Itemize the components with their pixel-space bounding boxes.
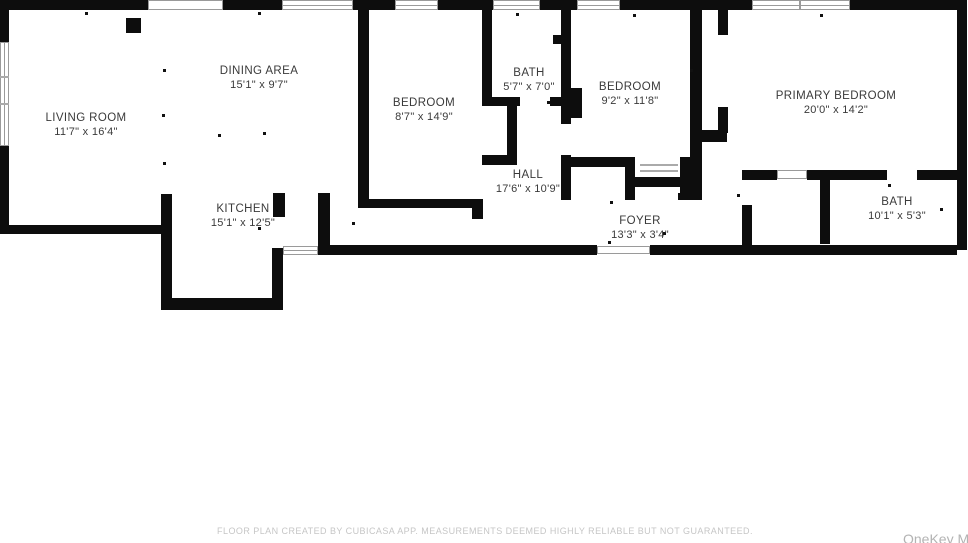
wall — [438, 0, 493, 10]
room-name: BEDROOM — [393, 96, 455, 110]
room-name: FOYER — [611, 214, 669, 228]
wall — [742, 170, 777, 180]
window-pane-line — [753, 5, 799, 6]
wall — [807, 170, 830, 180]
room-label-hall: HALL 17'6" x 10'9" — [496, 168, 560, 196]
wall — [620, 0, 752, 10]
wall — [690, 130, 727, 142]
door-tick — [352, 222, 355, 225]
window-pane-line — [284, 250, 317, 251]
window — [752, 0, 800, 10]
wall — [161, 194, 172, 310]
wall — [318, 193, 330, 252]
room-dims: 5'7" x 7'0" — [503, 80, 554, 94]
room-label-dining-area: DINING AREA 15'1" x 9'7" — [220, 64, 299, 92]
room-label-living-room: LIVING ROOM 11'7" x 16'4" — [45, 111, 126, 139]
room-dims: 20'0" x 14'2" — [776, 103, 897, 117]
door-tick — [263, 132, 266, 135]
wall — [472, 208, 483, 219]
room-dims: 13'3" x 3'4" — [611, 228, 669, 242]
window — [148, 0, 223, 10]
wall — [0, 0, 9, 42]
wall — [482, 97, 520, 106]
wall — [482, 10, 492, 106]
room-dims: 15'1" x 9'7" — [220, 78, 299, 92]
door-tick — [547, 101, 550, 104]
wall — [0, 225, 172, 234]
wall — [917, 170, 957, 180]
window — [493, 0, 540, 10]
room-name: PRIMARY BEDROOM — [776, 89, 897, 103]
door-tick — [258, 12, 261, 15]
wall — [272, 248, 283, 310]
wall — [553, 35, 561, 44]
room-dims: 17'6" x 10'9" — [496, 182, 560, 196]
door-tick — [633, 14, 636, 17]
window — [777, 170, 807, 179]
disclaimer-text: FLOOR PLAN CREATED BY CUBICASA APP. MEAS… — [217, 526, 753, 536]
chimney-marker — [126, 18, 141, 33]
room-label-foyer: FOYER 13'3" x 3'4" — [611, 214, 669, 242]
wall — [0, 0, 148, 10]
room-dims: 11'7" x 16'4" — [45, 125, 126, 139]
window-pane-line — [396, 5, 437, 6]
window — [283, 246, 318, 255]
wall — [318, 245, 597, 255]
room-dims: 9'2" x 11'8" — [599, 94, 661, 108]
shelf-line — [0, 103, 9, 105]
door-tick — [690, 69, 693, 72]
room-name: BATH — [503, 66, 554, 80]
wall — [482, 155, 517, 165]
wall — [742, 205, 752, 246]
window-pane-line — [4, 43, 5, 145]
room-label-kitchen: KITCHEN 15'1" x 12'5" — [211, 202, 275, 230]
wall — [830, 170, 887, 180]
shelf-line — [640, 170, 678, 172]
room-name: BEDROOM — [599, 80, 661, 94]
window-pane-line — [283, 5, 352, 6]
wall — [718, 10, 728, 35]
room-label-bath-1: BATH 5'7" x 7'0" — [503, 66, 554, 94]
room-label-bedroom-1: BEDROOM 8'7" x 14'9" — [393, 96, 455, 124]
room-label-primary-bedroom: PRIMARY BEDROOM 20'0" x 14'2" — [776, 89, 897, 117]
floor-plan-canvas: LIVING ROOM 11'7" x 16'4" DINING AREA 15… — [0, 0, 968, 543]
door-tick — [820, 14, 823, 17]
wall — [0, 146, 9, 233]
door-tick — [85, 12, 88, 15]
wall — [850, 0, 967, 10]
window — [577, 0, 620, 10]
wall — [540, 0, 577, 10]
door-tick — [888, 184, 891, 187]
wall — [650, 245, 957, 255]
wall — [957, 10, 967, 250]
window — [395, 0, 438, 10]
wall — [358, 10, 369, 208]
shelf-line — [640, 164, 678, 166]
window — [282, 0, 353, 10]
room-name: KITCHEN — [211, 202, 275, 216]
door-tick — [163, 69, 166, 72]
wall — [690, 10, 702, 200]
wall — [353, 0, 395, 10]
wall — [507, 106, 517, 155]
wall — [223, 0, 282, 10]
room-name: LIVING ROOM — [45, 111, 126, 125]
window-pane-line — [494, 5, 539, 6]
watermark-text: OneKey M — [903, 531, 968, 543]
window — [800, 0, 850, 10]
room-name: BATH — [868, 195, 926, 209]
door-tick — [516, 13, 519, 16]
window — [597, 246, 650, 254]
room-name: DINING AREA — [220, 64, 299, 78]
wall — [161, 298, 283, 310]
room-label-bedroom-2: BEDROOM 9'2" x 11'8" — [599, 80, 661, 108]
shelf-line — [0, 76, 9, 78]
room-dims: 15'1" x 12'5" — [211, 216, 275, 230]
window-pane-line — [578, 5, 619, 6]
door-tick — [737, 194, 740, 197]
room-dims: 10'1" x 5'3" — [868, 209, 926, 223]
plumbing-chase-marker — [566, 88, 582, 118]
door-tick — [940, 208, 943, 211]
door-tick — [163, 162, 166, 165]
room-name: HALL — [496, 168, 560, 182]
wall — [820, 180, 830, 244]
window — [0, 42, 9, 146]
wall — [561, 157, 628, 167]
door-tick — [218, 134, 221, 137]
window-pane-line — [801, 5, 849, 6]
wall — [358, 199, 483, 208]
room-label-bath-2: BATH 10'1" x 5'3" — [868, 195, 926, 223]
door-tick — [610, 201, 613, 204]
door-tick — [162, 114, 165, 117]
room-dims: 8'7" x 14'9" — [393, 110, 455, 124]
